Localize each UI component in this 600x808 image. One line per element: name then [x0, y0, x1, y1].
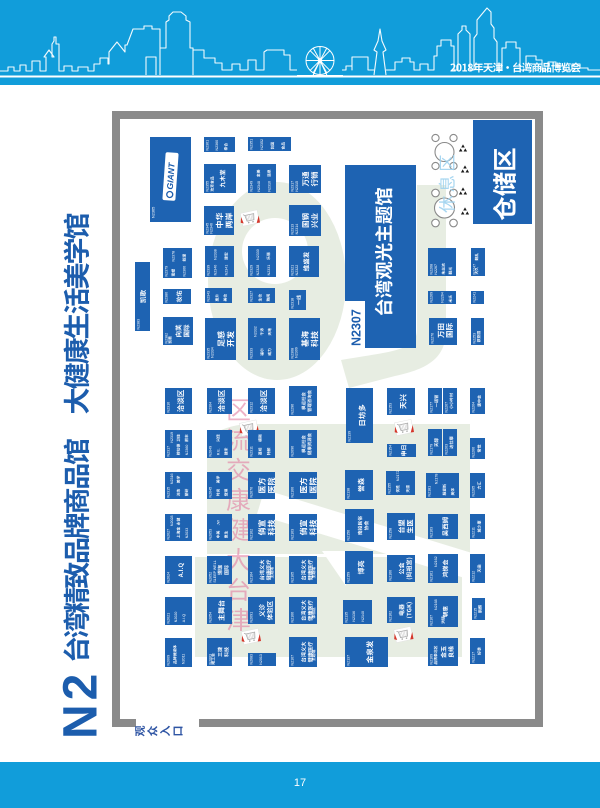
svg-text:N2137: N2137 — [346, 655, 350, 666]
svg-text:N2341: N2341 — [225, 265, 229, 276]
svg-text:N2319: N2319 — [170, 432, 174, 443]
svg-text:N2312: N2312 — [249, 402, 253, 413]
svg-text:N2021: N2021 — [166, 613, 170, 624]
svg-text:N2103: N2103 — [290, 529, 294, 540]
svg-text:N2162: N2162 — [388, 611, 392, 622]
svg-text:GIANT: GIANT — [165, 162, 177, 190]
svg-text:N2096: N2096 — [290, 446, 294, 457]
svg-text:N2309: N2309 — [295, 347, 299, 358]
svg-text:N2020: N2020 — [174, 612, 178, 623]
svg-text:N2153: N2153 — [388, 403, 392, 414]
svg-text:N2355: N2355 — [205, 181, 209, 192]
svg-text:N2333: N2333 — [249, 348, 253, 359]
svg-text:R.E.: R.E. — [217, 448, 221, 455]
svg-text:N2135: N2135 — [344, 612, 348, 623]
svg-text:N2027: N2027 — [166, 529, 170, 540]
svg-text:N2311: N2311 — [249, 446, 253, 456]
svg-text:N2013: N2013 — [259, 654, 263, 665]
svg-text:N2314: N2314 — [295, 224, 299, 235]
svg-text:N2: N2 — [55, 670, 108, 739]
svg-text:N2140: N2140 — [361, 611, 365, 622]
svg-text:N2107: N2107 — [290, 655, 294, 666]
svg-text:N2366: N2366 — [183, 266, 187, 277]
svg-text:JW: JW — [217, 520, 221, 526]
svg-text:N2322: N2322 — [295, 265, 299, 276]
svg-text:N2270: N2270 — [430, 333, 434, 344]
svg-text:N2053: N2053 — [208, 529, 212, 540]
svg-text:N2296: N2296 — [290, 404, 294, 415]
svg-text:N2139: N2139 — [347, 431, 351, 442]
svg-text:N2160: N2160 — [388, 570, 392, 581]
svg-text:N2203: N2203 — [444, 444, 448, 455]
svg-text:N2351: N2351 — [249, 139, 253, 150]
svg-text:N2155: N2155 — [387, 483, 391, 494]
svg-text:N2161: N2161 — [429, 571, 433, 582]
svg-text:N2054: N2054 — [208, 612, 212, 623]
svg-text:N2177: N2177 — [429, 402, 433, 413]
svg-text:N2340: N2340 — [214, 265, 218, 276]
svg-text:N2163: N2163 — [429, 527, 433, 538]
svg-text:N2215: N2215 — [473, 608, 477, 619]
svg-text:N2269: N2269 — [429, 292, 433, 303]
svg-text:N2317: N2317 — [290, 181, 294, 192]
svg-text:N2206: N2206 — [471, 447, 475, 458]
svg-text:N2181: N2181 — [427, 486, 431, 497]
svg-text:N2154: N2154 — [388, 445, 392, 456]
svg-text:N2315: N2315 — [295, 181, 299, 192]
svg-text:N2136: N2136 — [352, 611, 356, 622]
svg-text:N2348: N2348 — [257, 181, 261, 192]
svg-text:N2178: N2178 — [435, 474, 439, 485]
svg-text:N2310: N2310 — [166, 402, 170, 413]
svg-text:N2315: N2315 — [166, 487, 170, 498]
svg-text:N2204: N2204 — [471, 402, 475, 413]
svg-text:N2156: N2156 — [346, 530, 350, 541]
svg-text:N2100: N2100 — [290, 487, 294, 498]
svg-text:N2331: N2331 — [267, 265, 271, 276]
svg-text:17: 17 — [294, 777, 306, 789]
svg-text:N2321: N2321 — [290, 265, 294, 276]
svg-text:N2052: N2052 — [208, 572, 212, 583]
svg-text:N2339: N2339 — [206, 265, 210, 276]
svg-text:N2310: N2310 — [267, 181, 271, 192]
svg-text:N2327: N2327 — [249, 291, 253, 302]
svg-text:N2011: N2011 — [181, 654, 185, 664]
svg-text:N2168: N2168 — [434, 599, 438, 610]
svg-text:N2211: N2211 — [471, 527, 475, 537]
svg-text:N2338: N2338 — [214, 249, 218, 260]
svg-text:N2179: N2179 — [429, 444, 433, 455]
svg-text:N2172: N2172 — [396, 471, 400, 482]
svg-text:N2049: N2049 — [208, 446, 212, 457]
svg-text:N2024: N2024 — [166, 572, 170, 583]
svg-text:N2313: N2313 — [290, 224, 294, 235]
svg-text:N2106: N2106 — [290, 612, 294, 623]
svg-text:N2365: N2365 — [152, 207, 156, 218]
svg-text:N2102: N2102 — [249, 529, 253, 540]
svg-text:N2159: N2159 — [346, 572, 350, 583]
svg-text:N2267: N2267 — [434, 264, 438, 275]
svg-text:N2318: N2318 — [290, 298, 294, 309]
svg-text:N2352: N2352 — [260, 139, 264, 150]
svg-text:N2028: N2028 — [170, 516, 174, 527]
svg-text:A.I.Q: A.I.Q — [182, 614, 186, 622]
svg-text:N2009: N2009 — [166, 655, 170, 666]
svg-text:N2045: N2045 — [208, 487, 212, 498]
svg-text:N2264: N2264 — [440, 292, 444, 303]
svg-text:N2332: N2332 — [253, 326, 257, 337]
svg-text:N2304: N2304 — [208, 402, 212, 413]
svg-text:N2360: N2360 — [185, 445, 189, 456]
svg-text:N2382: N2382 — [164, 333, 168, 344]
svg-text:N2361: N2361 — [205, 140, 209, 151]
svg-text:N2241: N2241 — [472, 292, 476, 303]
svg-text:N2330: N2330 — [256, 249, 260, 260]
svg-text:N2205: N2205 — [471, 486, 475, 497]
svg-text:N2253: N2253 — [472, 333, 476, 344]
svg-text:N2162: N2162 — [434, 556, 438, 567]
svg-text:N2328: N2328 — [256, 265, 260, 276]
svg-text:N2316: N2316 — [170, 474, 174, 485]
svg-text:N2104: N2104 — [249, 572, 253, 583]
svg-text:N2349: N2349 — [249, 181, 253, 192]
svg-text:N2070: N2070 — [249, 487, 253, 498]
svg-text:N2207: N2207 — [444, 402, 448, 413]
svg-text:N2379: N2379 — [164, 266, 168, 277]
svg-text:N2268: N2268 — [429, 264, 433, 275]
svg-text:N2308: N2308 — [290, 348, 294, 359]
svg-text:N2343: N2343 — [206, 291, 210, 302]
svg-text:N2329: N2329 — [249, 265, 253, 276]
svg-text:N2169: N2169 — [429, 654, 433, 665]
svg-text:N2091: N2091 — [249, 612, 253, 623]
svg-text:N2378: N2378 — [172, 251, 176, 262]
svg-text:N2317: N2317 — [166, 446, 170, 457]
svg-text:N2217: N2217 — [471, 652, 475, 663]
svg-text:N2033: N2033 — [185, 528, 189, 539]
svg-text:SLEEP WELL: SLEEP WELL — [213, 560, 217, 582]
svg-text:N2335: N2335 — [206, 348, 210, 359]
svg-text:N2158: N2158 — [388, 528, 392, 539]
svg-text:N2138: N2138 — [346, 488, 350, 499]
svg-text:N2212: N2212 — [471, 571, 475, 582]
svg-text:N2105: N2105 — [290, 572, 294, 583]
svg-text:N2167: N2167 — [429, 615, 433, 626]
svg-text:N2334: N2334 — [211, 347, 215, 358]
svg-text:N2360: N2360 — [215, 140, 219, 151]
svg-text:N2383: N2383 — [136, 319, 140, 330]
svg-text:N2307: N2307 — [350, 309, 364, 346]
svg-text:N2380: N2380 — [164, 292, 168, 303]
svg-text:N2083: N2083 — [249, 654, 253, 665]
svg-text:N2346: N2346 — [209, 223, 213, 234]
